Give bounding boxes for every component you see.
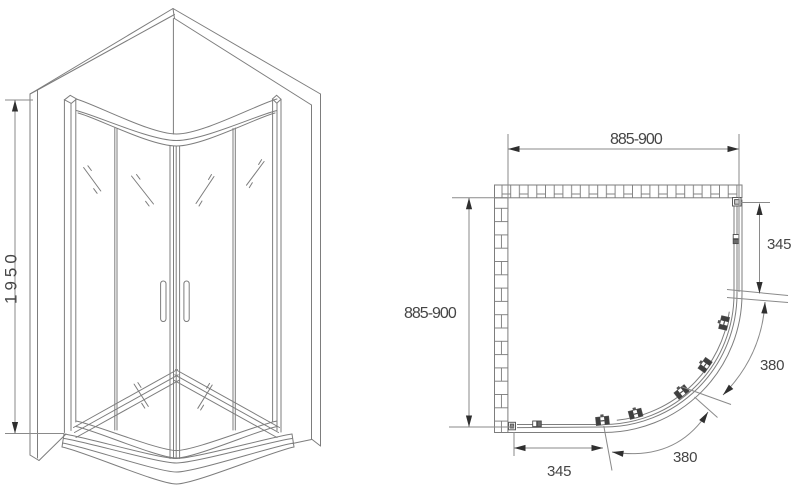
svg-text:380: 380 — [760, 357, 784, 374]
svg-text:345: 345 — [767, 236, 791, 253]
svg-text:885-900: 885-900 — [404, 305, 457, 322]
svg-text:345: 345 — [547, 463, 571, 480]
svg-text:380: 380 — [673, 449, 697, 466]
svg-text:1950: 1950 — [2, 250, 21, 304]
svg-text:885-900: 885-900 — [610, 131, 663, 148]
